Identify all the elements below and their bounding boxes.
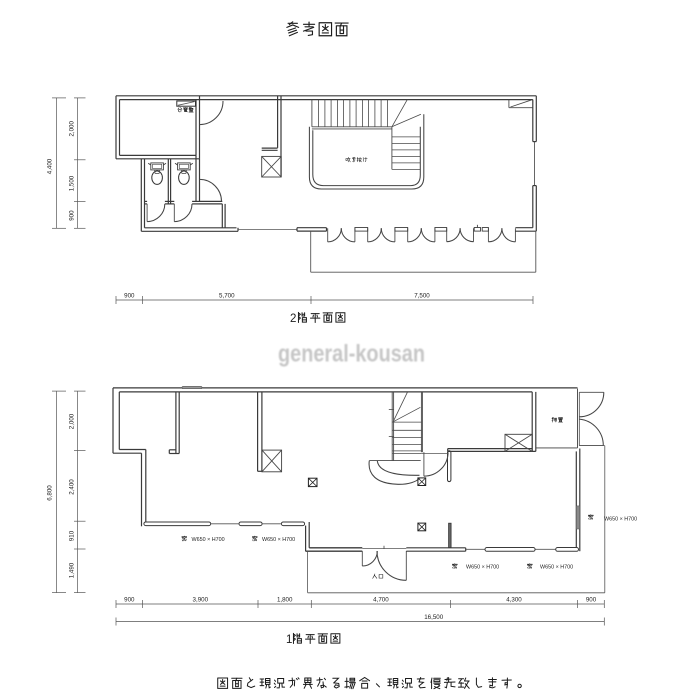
svg-text:1,500: 1,500 — [69, 175, 76, 191]
svg-text:2,400: 2,400 — [69, 479, 76, 495]
svg-text:900: 900 — [69, 210, 76, 221]
svg-text:4,700: 4,700 — [373, 597, 389, 604]
svg-text:6,800: 6,800 — [47, 485, 54, 501]
svg-text:910: 910 — [69, 530, 76, 541]
svg-text:1,490: 1,490 — [69, 562, 76, 578]
svg-text:2,000: 2,000 — [69, 120, 76, 136]
svg-text:general-kousan: general-kousan — [278, 341, 425, 368]
svg-text:4,300: 4,300 — [506, 597, 522, 604]
svg-text:3,900: 3,900 — [193, 597, 209, 604]
svg-text:16,500: 16,500 — [424, 614, 443, 621]
svg-text:1,800: 1,800 — [277, 597, 293, 604]
svg-text:2: 2 — [290, 313, 296, 325]
svg-text:900: 900 — [586, 597, 597, 604]
svg-text:2,000: 2,000 — [69, 413, 76, 429]
svg-text:900: 900 — [124, 293, 135, 300]
svg-text:1: 1 — [286, 634, 292, 646]
svg-text:W650 × H700: W650 × H700 — [604, 517, 637, 523]
svg-text:W650 × H700: W650 × H700 — [262, 537, 295, 543]
svg-text:W650 × H700: W650 × H700 — [192, 537, 225, 543]
svg-text:900: 900 — [124, 597, 135, 604]
svg-text:W650 × H700: W650 × H700 — [466, 565, 499, 571]
svg-text:4,400: 4,400 — [47, 158, 54, 174]
svg-text:5,700: 5,700 — [219, 293, 235, 300]
svg-text:W650 × H700: W650 × H700 — [540, 565, 573, 571]
svg-text:7,500: 7,500 — [414, 293, 430, 300]
